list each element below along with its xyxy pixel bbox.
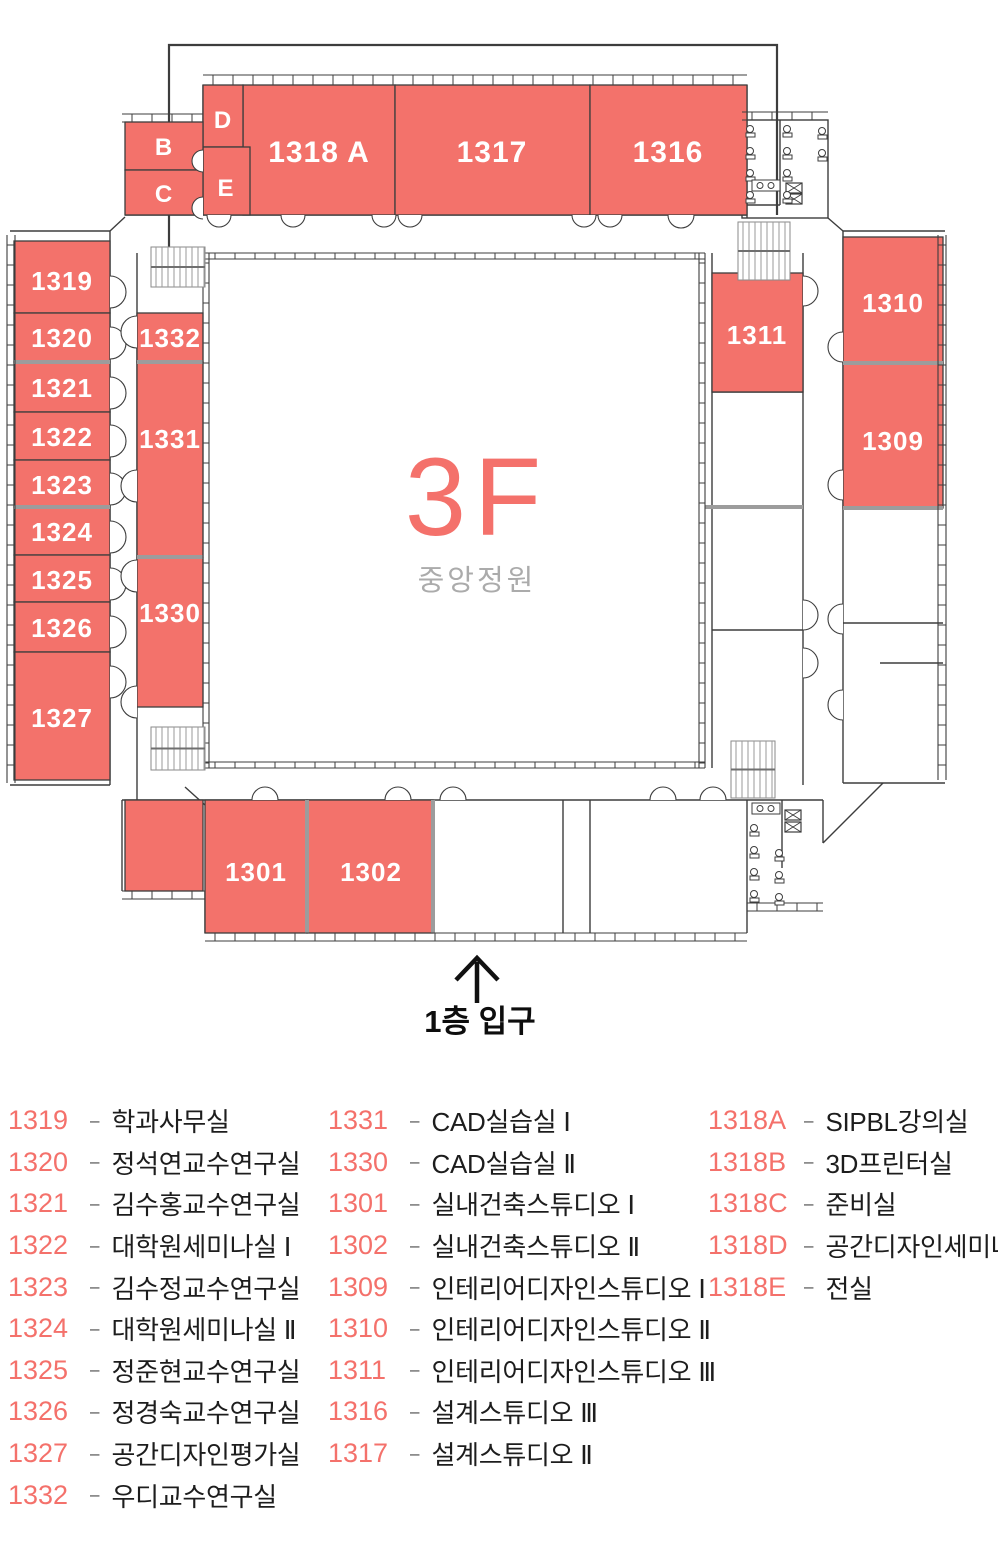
svg-text:1301: 1301: [225, 857, 287, 887]
svg-text:1320: 1320: [31, 323, 93, 353]
legend-item: 1332–우디교수연구실: [8, 1474, 300, 1516]
toilet-icon: [776, 850, 783, 857]
legend-room-name: 대학원세미나실 Ⅱ: [111, 1310, 296, 1347]
legend-room-name: 설계스튜디오 Ⅱ: [431, 1435, 592, 1472]
legend: 1319–학과사무실1320–정석연교수연구실1321–김수홍교수연구실1322…: [0, 1100, 998, 1540]
toilet-icon: [784, 148, 791, 155]
room-1310: 1310: [843, 237, 943, 363]
legend-room-name: 정준현교수연구실: [111, 1352, 300, 1389]
room-1325: 1325: [14, 555, 110, 602]
door-arc: [828, 604, 843, 634]
toilet-icon: [746, 155, 755, 159]
legend-item: 1323–김수정교수연구실: [8, 1266, 300, 1308]
legend-item: 1310–인테리어디자인스튜디오 Ⅱ: [328, 1308, 716, 1350]
legend-col1: 1319–학과사무실1320–정석연교수연구실1321–김수홍교수연구실1322…: [8, 1100, 300, 1516]
door-arc: [110, 616, 126, 648]
legend-separator: –: [90, 1111, 99, 1131]
toilet-icon: [783, 155, 792, 159]
legend-separator: –: [804, 1111, 813, 1131]
toilet-icon: [751, 869, 758, 876]
svg-text:1316: 1316: [633, 136, 704, 169]
toilet-icon: [751, 891, 758, 898]
legend-item: 1320–정석연교수연구실: [8, 1142, 300, 1184]
legend-room-name: 준비실: [825, 1185, 896, 1222]
legend-item: 1318D–공간디자인세미나실: [708, 1225, 998, 1267]
legend-item: 1327–공간디자인평가실: [8, 1433, 300, 1475]
room-1330: 1330: [137, 558, 203, 707]
svg-text:1332: 1332: [139, 323, 201, 353]
legend-room-name: 우디교수연구실: [111, 1477, 276, 1514]
toilet-icon: [784, 170, 791, 177]
courtyard-label: 중앙정원: [418, 565, 537, 597]
toilet-icon: [746, 199, 755, 203]
toilet-icon: [783, 177, 792, 181]
toilet-icon: [783, 133, 792, 137]
entrance-label: 1층 입구: [424, 1004, 535, 1039]
room-1326: 1326: [14, 602, 110, 652]
legend-separator: –: [804, 1277, 813, 1297]
legend-room-number: 1320: [8, 1147, 82, 1178]
legend-room-name: 실내건축스튜디오 Ⅱ: [431, 1227, 639, 1264]
svg-text:E: E: [217, 175, 234, 202]
legend-separator: –: [410, 1319, 419, 1339]
floor-label: 3F: [405, 436, 549, 559]
room-1322: 1322: [14, 412, 110, 460]
toilet-icon: [775, 901, 784, 905]
legend-item: 1325–정준현교수연구실: [8, 1350, 300, 1392]
toilet-icon: [746, 133, 755, 137]
door-arc: [110, 276, 126, 308]
legend-item: 1318C–준비실: [708, 1183, 998, 1225]
door-arc: [385, 787, 411, 800]
legend-room-number: 1324: [8, 1313, 82, 1344]
legend-room-name: 김수홍교수연구실: [111, 1185, 300, 1222]
svg-text:C: C: [155, 181, 173, 208]
legend-room-number: 1302: [328, 1230, 402, 1261]
door-arc: [110, 521, 126, 553]
door-arc: [828, 690, 843, 720]
toilet-icon: [747, 192, 754, 199]
toilet-icon: [784, 192, 791, 199]
room-1332: 1332: [137, 313, 203, 362]
toilet-icon: [776, 894, 783, 901]
legend-room-name: 정석연교수연구실: [111, 1144, 300, 1181]
toilet-icon: [750, 898, 759, 902]
legend-separator: –: [410, 1277, 419, 1297]
door-arc: [398, 215, 422, 227]
room-b: B: [125, 122, 203, 170]
legend-room-name: 대학원세미나실 Ⅰ: [111, 1227, 291, 1264]
room-1324: 1324: [14, 507, 110, 555]
toilet-icon: [750, 876, 759, 880]
sink-counter: [752, 180, 780, 191]
room-1320: 1320: [14, 313, 110, 362]
legend-separator: –: [410, 1402, 419, 1422]
legend-room-number: 1330: [328, 1147, 402, 1178]
legend-room-name: 김수정교수연구실: [111, 1269, 300, 1306]
room-1321: 1321: [14, 362, 110, 412]
legend-item: 1302–실내건축스튜디오 Ⅱ: [328, 1225, 716, 1267]
legend-room-name: 설계스튜디오 Ⅲ: [431, 1393, 597, 1430]
legend-item: 1321–김수홍교수연구실: [8, 1183, 300, 1225]
door-arc: [828, 332, 843, 362]
legend-room-name: 3D프린터실: [825, 1144, 952, 1181]
room-1319: 1319: [14, 241, 110, 313]
legend-room-number: 1318A: [708, 1105, 796, 1136]
legend-room-name: CAD실습실 Ⅰ: [431, 1102, 570, 1139]
legend-separator: –: [90, 1194, 99, 1214]
legend-room-number: 1310: [328, 1313, 402, 1344]
door-arc: [110, 377, 126, 409]
svg-text:1327: 1327: [31, 703, 93, 733]
door-arc: [572, 215, 596, 227]
svg-text:1318 A: 1318 A: [268, 136, 370, 169]
legend-item: 1301–실내건축스튜디오 Ⅰ: [328, 1183, 716, 1225]
room-1323: 1323: [14, 460, 110, 507]
room-d: D: [203, 85, 243, 147]
legend-separator: –: [90, 1152, 99, 1172]
toilet-icon: [818, 135, 827, 139]
legend-room-name: 공간디자인세미나실: [825, 1227, 998, 1264]
legend-room-name: 학과사무실: [111, 1102, 229, 1139]
svg-text:1310: 1310: [862, 288, 924, 318]
door-arc: [700, 787, 726, 800]
legend-item: 1318A–SIPBL강의실: [708, 1100, 998, 1142]
toilet-icon: [747, 126, 754, 133]
door-arc: [650, 787, 676, 800]
legend-room-name: 인테리어디자인스튜디오 Ⅱ: [431, 1310, 710, 1347]
door-arc: [110, 425, 126, 457]
legend-room-number: 1311: [328, 1355, 402, 1386]
svg-text:1326: 1326: [31, 613, 93, 643]
legend-separator: –: [90, 1444, 99, 1464]
toilet-icon: [747, 148, 754, 155]
door-arc: [207, 215, 231, 227]
svg-text:1321: 1321: [31, 373, 93, 403]
svg-text:B: B: [155, 134, 173, 161]
legend-item: 1318E–전실: [708, 1266, 998, 1308]
toilet-icon: [819, 128, 826, 135]
entrance-arrow-icon: [456, 958, 498, 1003]
legend-separator: –: [410, 1194, 419, 1214]
legend-separator: –: [90, 1236, 99, 1256]
toilet-icon: [784, 126, 791, 133]
legend-separator: –: [410, 1152, 419, 1172]
svg-text:1311: 1311: [727, 320, 787, 350]
legend-separator: –: [804, 1236, 813, 1256]
door-arc: [668, 215, 694, 228]
door-arc: [803, 600, 818, 630]
legend-room-name: 인테리어디자인스튜디오 Ⅲ: [431, 1352, 715, 1389]
svg-text:1330: 1330: [139, 598, 201, 628]
svg-text:1322: 1322: [31, 422, 93, 452]
door-arc: [803, 648, 818, 678]
legend-room-number: 1332: [8, 1480, 82, 1511]
door-arc: [281, 215, 305, 227]
legend-separator: –: [410, 1360, 419, 1380]
legend-item: 1318B–3D프린터실: [708, 1142, 998, 1184]
legend-room-number: 1317: [328, 1438, 402, 1469]
legend-col3: 1318A–SIPBL강의실1318B–3D프린터실1318C–준비실1318D…: [708, 1100, 998, 1308]
svg-text:1302: 1302: [340, 857, 402, 887]
legend-item: 1322–대학원세미나실 Ⅰ: [8, 1225, 300, 1267]
legend-room-name: 실내건축스튜디오 Ⅰ: [431, 1185, 634, 1222]
legend-item: 1317–설계스튜디오 Ⅱ: [328, 1433, 716, 1475]
room-c: C: [125, 170, 203, 215]
legend-separator: –: [90, 1402, 99, 1422]
room-1331: 1331: [137, 362, 203, 557]
legend-room-number: 1309: [328, 1272, 402, 1303]
svg-text:1324: 1324: [31, 517, 93, 547]
legend-item: 1324–대학원세미나실 Ⅱ: [8, 1308, 300, 1350]
legend-item: 1326–정경숙교수연구실: [8, 1391, 300, 1433]
legend-item: 1311–인테리어디자인스튜디오 Ⅲ: [328, 1350, 716, 1392]
legend-separator: –: [410, 1236, 419, 1256]
floorplan-page: 1318 A 1317 1316 D E B C 1319 1320 1321 …: [0, 0, 998, 1558]
toilet-icon: [775, 857, 784, 861]
legend-room-number: 1318C: [708, 1188, 796, 1219]
room-1316: 1316: [590, 85, 747, 215]
toilet-icon: [819, 150, 826, 157]
legend-room-name: CAD실습실 Ⅱ: [431, 1144, 575, 1181]
door-arc: [803, 276, 818, 306]
toilet-icon: [776, 872, 783, 879]
legend-room-name: 전실: [825, 1269, 872, 1306]
legend-separator: –: [804, 1194, 813, 1214]
toilet-icon: [750, 854, 759, 858]
door-arc: [252, 787, 278, 800]
legend-separator: –: [90, 1485, 99, 1505]
legend-room-number: 1331: [328, 1105, 402, 1136]
room-1301: 1301: [205, 800, 307, 933]
toilet-icon: [751, 847, 758, 854]
legend-separator: –: [90, 1277, 99, 1297]
toilet-icon: [750, 832, 759, 836]
room-1309: 1309: [843, 363, 943, 508]
legend-col2: 1331–CAD실습실 Ⅰ1330–CAD실습실 Ⅱ1301–실내건축스튜디오 …: [328, 1100, 716, 1474]
legend-room-name: 인테리어디자인스튜디오 Ⅰ: [431, 1269, 705, 1306]
legend-room-number: 1323: [8, 1272, 82, 1303]
svg-text:1331: 1331: [139, 424, 201, 454]
legend-room-number: 1301: [328, 1188, 402, 1219]
room-1327: 1327: [14, 652, 110, 780]
svg-text:1325: 1325: [31, 565, 93, 595]
room-1318a: 1318 A: [243, 85, 395, 215]
room-e: E: [203, 147, 250, 215]
room-1302: 1302: [307, 800, 433, 933]
legend-room-number: 1318E: [708, 1272, 796, 1303]
room-1317: 1317: [395, 85, 590, 215]
legend-room-number: 1327: [8, 1438, 82, 1469]
legend-room-name: 정경숙교수연구실: [111, 1393, 300, 1430]
legend-item: 1309–인테리어디자인스튜디오 Ⅰ: [328, 1266, 716, 1308]
legend-room-number: 1326: [8, 1396, 82, 1427]
legend-room-name: SIPBL강의실: [825, 1102, 968, 1139]
svg-text:1317: 1317: [457, 136, 528, 169]
legend-room-number: 1318D: [708, 1230, 796, 1261]
door-arc: [598, 215, 622, 227]
legend-room-number: 1318B: [708, 1147, 796, 1178]
svg-text:1309: 1309: [862, 426, 924, 456]
door-arc: [828, 470, 843, 500]
legend-separator: –: [410, 1111, 419, 1131]
toilet-icon: [783, 199, 792, 203]
legend-separator: –: [804, 1152, 813, 1172]
toilet-icon: [751, 825, 758, 832]
legend-item: 1316–설계스튜디오 Ⅲ: [328, 1391, 716, 1433]
legend-room-number: 1316: [328, 1396, 402, 1427]
legend-separator: –: [410, 1444, 419, 1464]
legend-room-number: 1319: [8, 1105, 82, 1136]
toilet-icon: [747, 170, 754, 177]
svg-text:1319: 1319: [31, 266, 93, 296]
room-annex: [125, 800, 203, 891]
legend-room-name: 공간디자인평가실: [111, 1435, 300, 1472]
door-arc: [440, 787, 466, 800]
svg-text:1323: 1323: [31, 470, 93, 500]
legend-room-number: 1322: [8, 1230, 82, 1261]
floor-plan: 1318 A 1317 1316 D E B C 1319 1320 1321 …: [0, 0, 998, 1060]
legend-separator: –: [90, 1319, 99, 1339]
legend-item: 1331–CAD실습실 Ⅰ: [328, 1100, 716, 1142]
door-arc: [372, 215, 396, 227]
legend-separator: –: [90, 1360, 99, 1380]
legend-room-number: 1321: [8, 1188, 82, 1219]
legend-room-number: 1325: [8, 1355, 82, 1386]
legend-item: 1319–학과사무실: [8, 1100, 300, 1142]
legend-item: 1330–CAD실습실 Ⅱ: [328, 1142, 716, 1184]
room-1311: 1311: [712, 273, 803, 392]
toilet-icon: [775, 879, 784, 883]
toilet-icon: [818, 157, 827, 161]
svg-text:D: D: [214, 107, 232, 134]
sink-counter: [752, 803, 780, 814]
